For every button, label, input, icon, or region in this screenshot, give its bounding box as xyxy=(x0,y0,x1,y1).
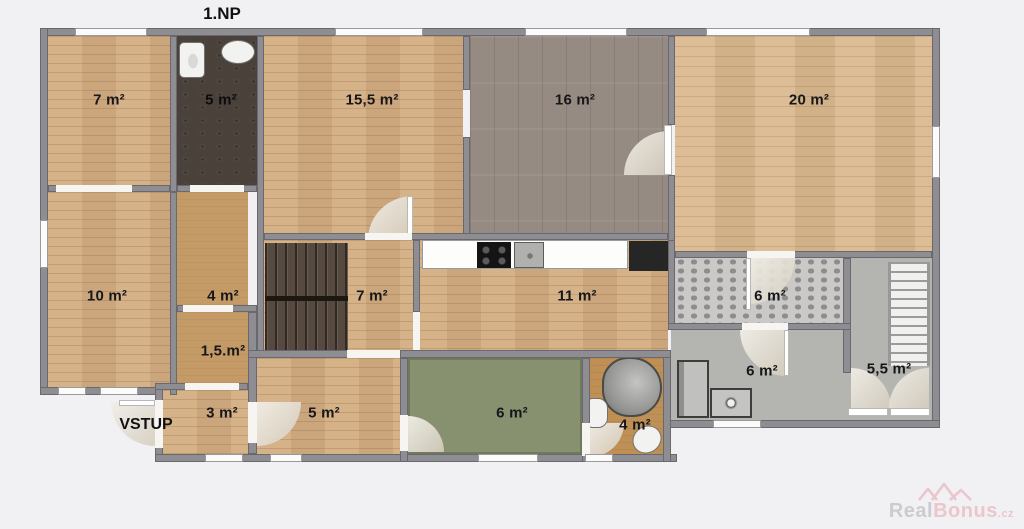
room-label-16: 16 m² xyxy=(555,92,595,109)
watermark-text: RealBonus.cz xyxy=(889,500,1014,523)
room-label-bathroom-4: 4 m² xyxy=(619,417,651,434)
opening-entry3-corridor xyxy=(248,402,257,443)
window-bottom-garden xyxy=(478,454,538,462)
room-label-10: 10 m² xyxy=(87,288,127,305)
floor-room-7-top-left xyxy=(48,36,170,185)
bathtub-icon xyxy=(602,357,662,417)
opening-room7 xyxy=(56,185,132,192)
door-leaf-room-16 xyxy=(664,125,672,175)
wall-room15-room16-b xyxy=(463,137,470,240)
room-label-bathroom-5: 5 m² xyxy=(205,92,237,109)
door-leaf-hall-6-tiled xyxy=(746,258,751,310)
room-label-stair-hall-7: 7 m² xyxy=(356,288,388,305)
room-label-garden-room-6: 6 m² xyxy=(496,405,528,422)
wall-kitchen-right xyxy=(668,240,675,330)
floor-entry-3 xyxy=(163,390,248,454)
double-door-sill-right xyxy=(890,408,930,416)
watermark-brand-gray: Real xyxy=(889,500,933,522)
opening-bathroom-4 xyxy=(582,423,590,456)
wall-bathroom-4-right xyxy=(663,350,671,462)
window-bottom-corridor xyxy=(270,454,302,462)
stove-icon xyxy=(477,242,511,268)
wall-stairhall-kitchen xyxy=(413,240,420,312)
floor-title: 1.NP xyxy=(203,4,241,24)
wall-outer-right xyxy=(932,28,940,428)
wall-room10-hall4 xyxy=(170,192,177,395)
wall-room16-room20-a xyxy=(668,36,675,125)
entrance-label: VSTUP xyxy=(119,416,172,434)
room-label-stairwell-5-5: 5,5 m² xyxy=(867,361,912,378)
door-leaf-entrance xyxy=(119,400,155,406)
room-label-closet-1-5: 1,5.m² xyxy=(201,343,246,360)
wall-room7-bath5 xyxy=(170,36,177,192)
kitchen-sink-icon xyxy=(514,242,544,268)
room-label-hall-6-tiled: 6 m² xyxy=(754,288,786,305)
watermark: RealBonus.cz xyxy=(889,482,1014,523)
staircase-right xyxy=(888,262,930,366)
appliance-tall-icon xyxy=(677,360,709,418)
room-label-corridor-5: 5 m² xyxy=(308,405,340,422)
toilet-icon xyxy=(221,40,255,64)
wall-bath5-room15 xyxy=(257,36,264,353)
opening-bath5 xyxy=(190,185,244,192)
room-label-7-top-left: 7 m² xyxy=(93,92,125,109)
double-door-sill-left xyxy=(848,408,888,416)
window-bottom-room10-a xyxy=(58,387,86,395)
opening-hall4 xyxy=(183,305,233,312)
wall-tiled-stairwell xyxy=(843,258,851,373)
floor-room-20 xyxy=(675,36,932,251)
window-right-room20 xyxy=(932,126,940,178)
opening-stairhall-kitchen xyxy=(413,312,420,350)
room-label-utility-6: 6 m² xyxy=(746,363,778,380)
watermark-tld: .cz xyxy=(998,508,1014,520)
refrigerator-icon xyxy=(629,241,673,271)
opening-stairhall-corridor xyxy=(347,350,400,358)
room-label-20: 20 m² xyxy=(789,92,829,109)
opening-garden-room xyxy=(400,415,408,451)
watermark-brand-pink: Bonus xyxy=(933,500,998,522)
room-label-kitchen-11: 11 m² xyxy=(557,288,596,305)
opening-closet-entry xyxy=(185,383,239,390)
wall-under-room15-16 xyxy=(264,233,668,240)
wall-kitchen-bottom xyxy=(400,350,671,358)
washing-machine-icon xyxy=(710,388,752,418)
window-left-room10 xyxy=(40,220,48,268)
wall-under-room20 xyxy=(675,251,932,258)
door-leaf-utility-6 xyxy=(784,330,789,376)
floor-room-16 xyxy=(470,36,668,233)
wall-outer-left xyxy=(40,28,48,395)
wall-outer-bottom-right xyxy=(668,420,940,428)
realbonus-logo-icon xyxy=(917,482,981,502)
floor-room-15-5 xyxy=(264,36,463,233)
window-top-room16 xyxy=(525,28,627,36)
door-leaf-room-15-5 xyxy=(407,196,413,236)
staircase-main-landing xyxy=(265,296,348,301)
opening-utility xyxy=(742,323,788,330)
wall-room15-room16-a xyxy=(463,36,470,90)
room-label-15-5: 15,5 m² xyxy=(345,92,398,109)
room-label-hall-4: 4 m² xyxy=(207,288,239,305)
window-bottom-entry3 xyxy=(205,454,243,462)
floor-plan: 1.NP VSTUP xyxy=(0,0,1024,529)
window-bottom-utility xyxy=(713,420,761,428)
bathroom-sink-icon xyxy=(588,398,608,428)
window-bottom-bathroom4 xyxy=(585,454,613,462)
opening-room20-tiled xyxy=(747,251,795,258)
opening-room15 xyxy=(365,233,412,240)
room-label-entry-3: 3 m² xyxy=(206,405,238,422)
window-bottom-room10-b xyxy=(100,387,138,395)
sink-icon xyxy=(179,42,205,78)
window-top-room7 xyxy=(75,28,147,36)
window-top-room20 xyxy=(706,28,810,36)
window-top-room15 xyxy=(335,28,423,36)
